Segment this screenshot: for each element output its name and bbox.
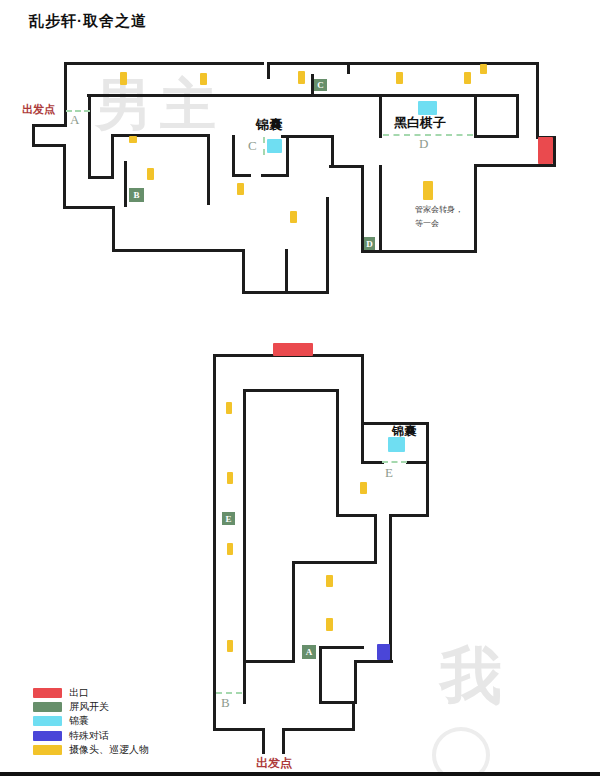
patrol-marker: [298, 71, 305, 84]
map-wall: [536, 62, 539, 139]
map-page: 乱步轩·取舍之道 男主CBDACD出发点锦囊黑白棋子管家会转身，等一会我EAEB…: [0, 0, 600, 776]
map-text: 管家会转身，: [415, 204, 463, 215]
map-wall: [63, 206, 115, 209]
patrol-marker: [120, 72, 127, 85]
legend-row-exit: 出口: [33, 686, 149, 700]
patrol-marker: [226, 402, 232, 414]
map-text: 出发点: [22, 102, 55, 117]
screen-door-dash: [216, 692, 242, 694]
map-wall: [64, 62, 67, 127]
map-wall: [111, 134, 210, 137]
map-wall: [329, 165, 364, 168]
patrol-marker: [360, 482, 367, 494]
patrol-marker: [396, 72, 403, 84]
legend-label-exit: 出口: [69, 686, 89, 700]
bag-marker: [267, 139, 282, 153]
switch-A-square: A: [302, 645, 316, 659]
map-wall: [352, 701, 355, 731]
legend-row-bag: 锦囊: [33, 714, 149, 728]
map-wall: [87, 94, 519, 97]
map-wall: [319, 646, 364, 649]
map-wall: [516, 94, 519, 138]
map-wall: [64, 62, 264, 65]
map-wall: [362, 461, 384, 464]
map-wall: [232, 135, 235, 177]
patrol-marker: [423, 181, 433, 200]
map-text: 黑白棋子: [394, 114, 446, 132]
map-wall: [282, 728, 285, 754]
patrol-marker: [237, 183, 244, 195]
map-wall: [374, 514, 377, 564]
patrol-marker: [147, 168, 154, 180]
legend-row-switch: 屏风开关: [33, 700, 149, 714]
map-wall: [379, 165, 382, 250]
map-wall: [474, 164, 556, 167]
switch-D-square: D: [364, 237, 375, 250]
legend-swatch-dialog: [33, 731, 62, 741]
map-wall: [389, 514, 392, 663]
legend-swatch-patrol: [33, 745, 62, 755]
map-wall: [32, 144, 66, 147]
patrol-marker: [227, 640, 233, 652]
map-wall: [361, 354, 364, 464]
map-wall: [111, 134, 114, 179]
map-wall: [261, 174, 289, 177]
lower-floor-watermark: 我: [440, 634, 510, 718]
legend-swatch-switch: [33, 702, 62, 712]
map-wall: [88, 94, 91, 179]
screen-door-dash: [263, 137, 265, 155]
map-wall: [243, 660, 295, 663]
map-wall: [282, 728, 355, 731]
map-text: 等一会: [415, 218, 439, 229]
door-label-D: D: [419, 136, 428, 152]
patrol-marker: [227, 543, 233, 555]
map-wall: [379, 94, 382, 138]
map-wall: [326, 197, 329, 294]
map-wall: [63, 144, 66, 209]
map-wall: [553, 136, 556, 167]
page-title: 乱步轩·取舍之道: [29, 12, 147, 31]
door-label-C: C: [248, 138, 257, 154]
patrol-marker: [290, 211, 297, 223]
switch-B-square: B: [129, 188, 144, 202]
patrol-marker: [464, 72, 471, 84]
map-wall: [112, 249, 245, 252]
legend-row-dialog: 特殊对话: [33, 729, 149, 743]
map-wall: [285, 249, 288, 294]
map-wall: [32, 124, 67, 127]
map-wall: [347, 62, 350, 74]
patrol-marker: [227, 472, 233, 484]
exit-marker: [538, 137, 553, 164]
map-wall: [354, 660, 357, 704]
patrol-marker: [326, 618, 333, 631]
map-wall: [262, 728, 265, 754]
dialog-marker: [377, 644, 390, 660]
legend-label-patrol: 摄像头、巡逻人物: [69, 743, 149, 757]
legend-label-switch: 屏风开关: [69, 700, 109, 714]
screen-door-dash: [382, 461, 407, 463]
exit-marker: [273, 343, 313, 356]
map-wall: [232, 174, 251, 177]
map-wall: [336, 514, 377, 517]
map-wall: [207, 134, 210, 205]
map-wall: [331, 135, 334, 168]
switch-E-square: E: [222, 512, 235, 525]
map-wall: [426, 422, 429, 464]
map-wall: [112, 206, 115, 252]
map-wall: [213, 728, 265, 731]
watermark-ring: [432, 727, 490, 776]
legend-label-dialog: 特殊对话: [69, 729, 109, 743]
patrol-marker: [129, 136, 137, 143]
map-wall: [213, 354, 216, 731]
legend-swatch-bag: [33, 716, 62, 726]
legend-row-patrol: 摄像头、巡逻人物: [33, 743, 149, 757]
map-text: 锦囊: [392, 423, 416, 440]
bag-marker: [418, 101, 437, 115]
map-wall: [474, 164, 477, 253]
map-wall: [474, 94, 477, 138]
map-wall: [242, 249, 245, 294]
door-label-A: A: [70, 112, 79, 128]
map-wall: [361, 250, 477, 253]
legend-label-bag: 锦囊: [69, 714, 89, 728]
map-text: 出发点: [256, 755, 292, 772]
map-wall: [267, 62, 539, 65]
switch-C-square: C: [314, 79, 327, 91]
map-wall: [389, 514, 429, 517]
map-wall: [426, 461, 429, 517]
patrol-marker: [326, 575, 333, 587]
map-wall: [354, 660, 393, 663]
map-wall: [286, 135, 289, 177]
map-wall: [474, 135, 519, 138]
door-label-B: B: [221, 695, 230, 711]
map-wall: [292, 561, 295, 663]
map-wall: [243, 389, 246, 704]
map-wall: [319, 646, 322, 704]
map-wall: [243, 389, 339, 392]
patrol-marker: [200, 73, 207, 85]
map-wall: [336, 389, 339, 517]
map-wall: [292, 561, 377, 564]
door-label-E: E: [385, 465, 393, 481]
map-wall: [319, 701, 357, 704]
legend: 出口屏风开关锦囊特殊对话摄像头、巡逻人物: [33, 686, 149, 757]
bottom-border: [0, 772, 600, 776]
legend-swatch-exit: [33, 688, 62, 698]
patrol-marker: [480, 64, 487, 74]
map-text: 锦囊: [256, 116, 282, 134]
map-wall: [267, 62, 270, 79]
map-wall: [124, 161, 127, 207]
